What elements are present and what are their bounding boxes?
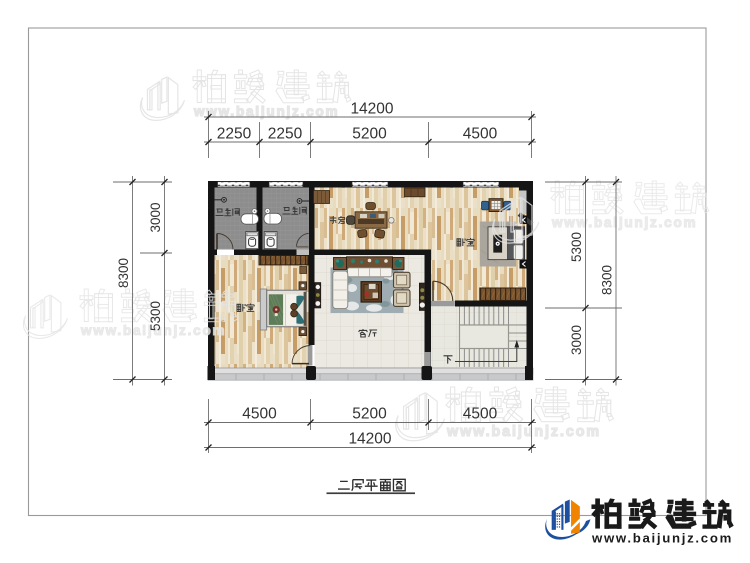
svg-text:4500: 4500 [463,406,498,423]
svg-text:4500: 4500 [242,406,277,423]
svg-text:5300: 5300 [148,301,163,331]
svg-text:14200: 14200 [348,431,391,448]
svg-text:14200: 14200 [350,101,393,118]
svg-text:8300: 8300 [600,265,615,295]
svg-text:4500: 4500 [463,126,498,143]
svg-text:5200: 5200 [352,406,387,423]
svg-text:3000: 3000 [148,202,163,232]
svg-text:2250: 2250 [268,126,303,143]
svg-text:3000: 3000 [569,325,584,355]
svg-text:5200: 5200 [352,126,387,143]
svg-text:www.baijunjz.com: www.baijunjz.com [591,531,733,546]
svg-text:8300: 8300 [116,258,131,288]
svg-text:5300: 5300 [569,232,584,262]
svg-text:2250: 2250 [217,126,252,143]
